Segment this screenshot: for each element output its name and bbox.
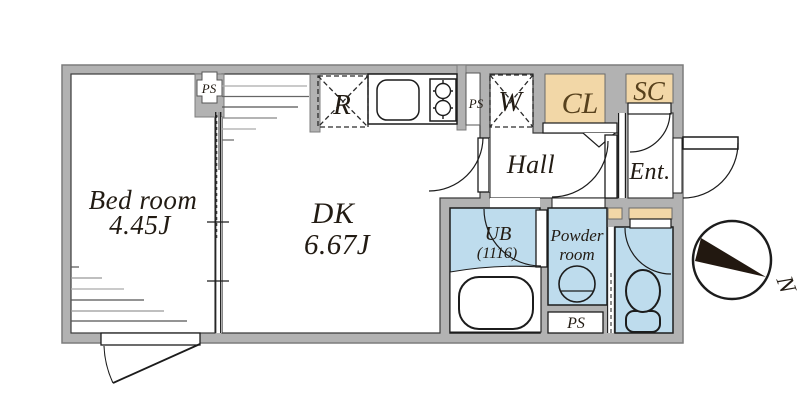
entrance-doorway [673, 138, 682, 193]
closet-shelf [543, 123, 617, 133]
compass: N [693, 221, 800, 299]
balcony-door-frame [101, 333, 200, 345]
dk-door-leaf [478, 138, 489, 192]
entrance-label: Ent. [628, 159, 670, 185]
unit-bath-label: UB [485, 223, 512, 245]
powder-doorway [552, 198, 605, 208]
dk-size-label: 6.67J [304, 229, 371, 261]
dk-label: DK [311, 197, 356, 230]
entrance-door-leaf [683, 137, 738, 149]
kitchen-right-wall-stub [457, 65, 466, 130]
pipe-space-kitchen-label: PS [468, 96, 484, 111]
pipe-space-lower-label: PS [566, 315, 585, 332]
closet-label: CL [562, 87, 599, 120]
toilet-bowl [626, 270, 660, 312]
balcony-door-arc [104, 346, 113, 383]
compass-north-label: N [770, 272, 800, 299]
hall-ent-partition [618, 113, 626, 198]
toilet-base [626, 311, 660, 332]
powder-room-label-1: Powder [550, 226, 604, 245]
entrance-floor [628, 113, 673, 198]
storage-step-strip [629, 208, 672, 219]
unit-bath-size-label: (1116) [477, 245, 517, 262]
balcony-door-leaf [113, 344, 200, 383]
entrance-door-arc [683, 143, 738, 198]
floor-plan: N Bed room 4.45J DK 6.67J Hall Ent. CL S… [0, 0, 800, 415]
pipe-space-bedroom-label: PS [201, 81, 217, 96]
washer-label: W [498, 87, 524, 118]
powder-room-label-2: room [559, 245, 594, 264]
toilet-doorway-shelf [630, 219, 671, 228]
washbasin [559, 266, 595, 302]
floor-plan-canvas: N Bed room 4.45J DK 6.67J Hall Ent. CL S… [0, 0, 800, 415]
unit-bath-door-leaf [536, 210, 547, 267]
hall-label: Hall [506, 150, 555, 179]
ub-doorway [490, 198, 540, 208]
kitchen-sink [377, 80, 419, 120]
bedroom-size-label: 4.45J [109, 210, 172, 240]
bathtub [459, 277, 533, 329]
hall-ent-door-leaf [605, 135, 617, 198]
refrigerator-label: R [332, 89, 351, 121]
storage-step-small [608, 208, 622, 219]
shoe-closet-label: SC [633, 76, 666, 106]
